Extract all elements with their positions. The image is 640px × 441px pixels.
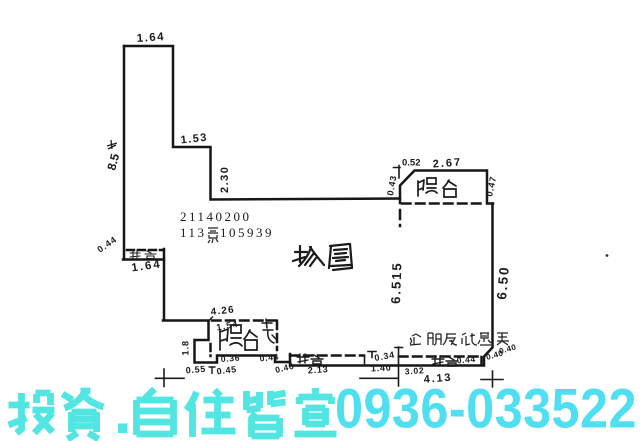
svg-text:2.30: 2.30	[219, 166, 231, 193]
svg-text:0936-033522: 0936-033522	[335, 378, 637, 440]
svg-text:0.36: 0.36	[220, 353, 240, 364]
svg-text:113: 113	[180, 225, 207, 240]
svg-text:21140200: 21140200	[180, 209, 252, 224]
svg-text:0.44: 0.44	[456, 354, 476, 366]
svg-text:0.44: 0.44	[259, 352, 279, 364]
svg-text:1.8: 1.8	[181, 340, 191, 356]
svg-text:6.50: 6.50	[494, 265, 512, 300]
svg-text:0.55: 0.55	[185, 364, 206, 376]
svg-text:2.67: 2.67	[432, 156, 462, 170]
svg-text:3.02: 3.02	[404, 365, 424, 376]
svg-text:105939: 105939	[220, 225, 274, 240]
svg-text:1.64: 1.64	[136, 31, 165, 45]
svg-text:2.13: 2.13	[307, 364, 328, 375]
svg-text:6.515: 6.515	[388, 261, 404, 304]
svg-text:0.52: 0.52	[402, 158, 421, 169]
svg-text:1.40: 1.40	[371, 362, 392, 373]
